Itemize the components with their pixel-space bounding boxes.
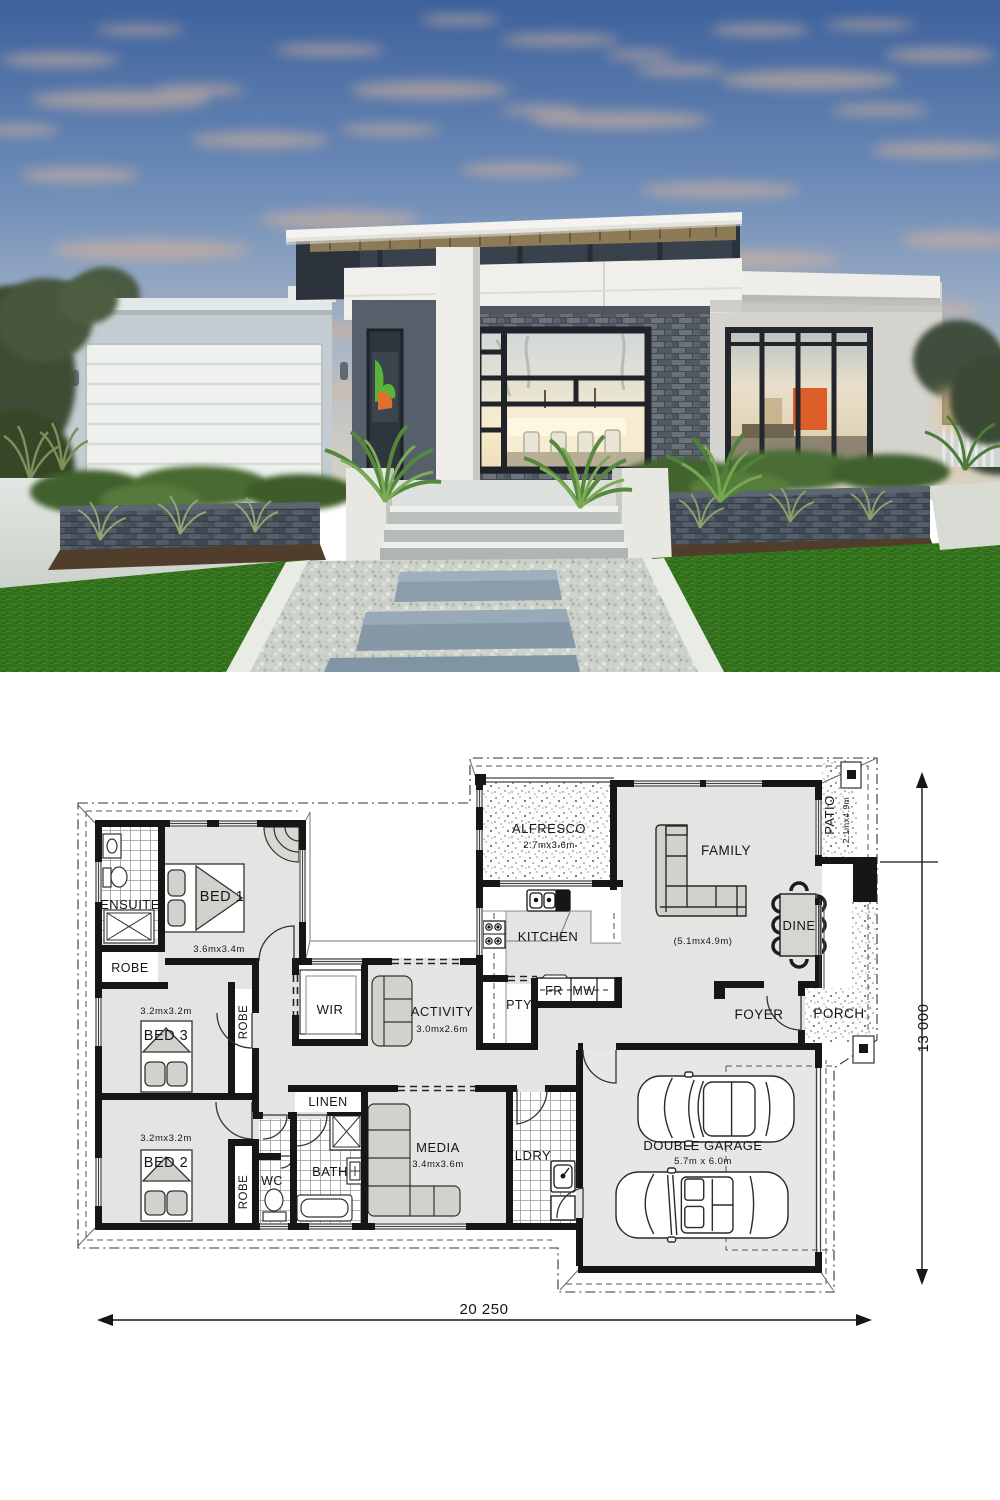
svg-text:DINE: DINE <box>782 918 815 933</box>
svg-text:2.1mx4.9m: 2.1mx4.9m <box>841 797 851 844</box>
svg-text:FOYER: FOYER <box>734 1007 783 1022</box>
svg-text:WC: WC <box>261 1174 283 1188</box>
svg-text:ENSUITE: ENSUITE <box>100 897 160 912</box>
svg-text:ROBE: ROBE <box>238 1175 250 1210</box>
svg-text:MEDIA: MEDIA <box>416 1140 460 1155</box>
svg-text:BATH: BATH <box>312 1164 348 1179</box>
svg-text:PORCH: PORCH <box>813 1006 864 1021</box>
svg-text:3.4mx3.6m: 3.4mx3.6m <box>412 1159 464 1170</box>
svg-text:3.2mx3.2m: 3.2mx3.2m <box>140 1133 192 1144</box>
svg-text:WIR: WIR <box>317 1002 344 1017</box>
svg-text:BED 2: BED 2 <box>144 1155 188 1171</box>
svg-text:2.7mx3.6m: 2.7mx3.6m <box>523 840 575 851</box>
svg-text:13 000: 13 000 <box>915 1004 932 1053</box>
svg-text:BED 1: BED 1 <box>200 889 244 905</box>
svg-text:3.2mx3.2m: 3.2mx3.2m <box>140 1006 192 1017</box>
svg-text:ROBE: ROBE <box>111 961 148 975</box>
svg-text:MW: MW <box>572 984 595 998</box>
svg-text:3.6mx3.4m: 3.6mx3.4m <box>193 944 245 955</box>
svg-text:5.7m x 6.0m: 5.7m x 6.0m <box>674 1156 732 1167</box>
svg-text:PTY: PTY <box>506 998 532 1012</box>
svg-text:LINEN: LINEN <box>308 1095 347 1109</box>
svg-text:FAMILY: FAMILY <box>701 843 751 858</box>
svg-text:KITCHEN: KITCHEN <box>518 929 579 944</box>
svg-text:ROBE: ROBE <box>238 1005 250 1040</box>
svg-text:20 250: 20 250 <box>460 1301 509 1318</box>
svg-text:PATIO: PATIO <box>822 795 837 835</box>
svg-text:DOUBLE GARAGE: DOUBLE GARAGE <box>643 1138 762 1153</box>
svg-text:LDRY: LDRY <box>515 1148 551 1163</box>
svg-text:ALFRESCO: ALFRESCO <box>512 821 586 836</box>
svg-text:(5.1mx4.9m): (5.1mx4.9m) <box>674 936 733 947</box>
svg-text:3.0mx2.6m: 3.0mx2.6m <box>416 1024 468 1035</box>
svg-text:ACTIVITY: ACTIVITY <box>411 1004 474 1019</box>
svg-text:BED 3: BED 3 <box>144 1028 188 1044</box>
svg-text:FR: FR <box>545 984 563 998</box>
